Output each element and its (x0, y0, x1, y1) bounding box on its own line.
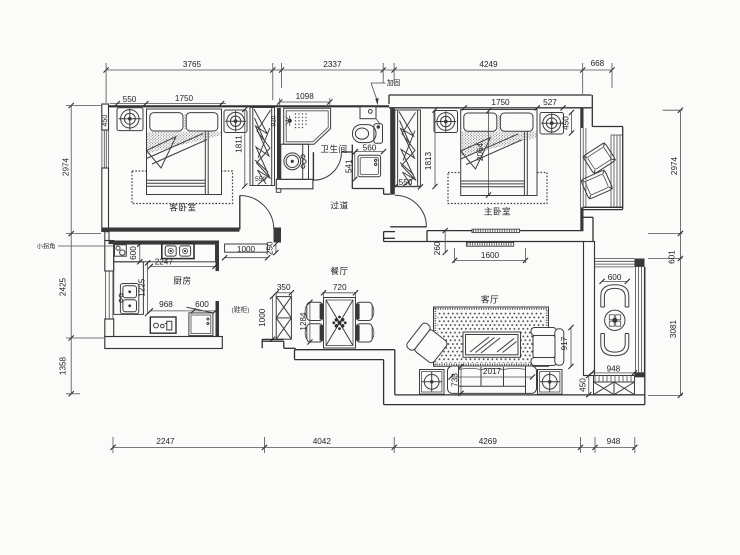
svg-text:920: 920 (271, 115, 278, 126)
svg-text:250: 250 (265, 241, 274, 255)
svg-text:350: 350 (277, 283, 291, 292)
svg-text:2064: 2064 (476, 142, 485, 161)
svg-text:600: 600 (608, 273, 622, 282)
svg-text:601: 601 (668, 250, 677, 264)
svg-text:(鞋柜): (鞋柜) (231, 305, 249, 314)
svg-text:1600: 1600 (481, 251, 500, 260)
svg-text:948: 948 (607, 364, 621, 373)
svg-text:1284: 1284 (299, 312, 308, 331)
svg-text:550: 550 (255, 176, 266, 183)
svg-text:450: 450 (579, 378, 588, 392)
svg-text:2247: 2247 (156, 437, 175, 446)
svg-text:1098: 1098 (296, 92, 315, 101)
svg-text:2337: 2337 (323, 60, 342, 69)
svg-text:加固: 加固 (387, 78, 401, 87)
svg-text:1750: 1750 (175, 94, 194, 103)
svg-text:560: 560 (363, 144, 377, 153)
svg-text:1813: 1813 (424, 151, 433, 170)
svg-text:1000: 1000 (258, 308, 267, 327)
svg-text:450: 450 (100, 115, 109, 127)
svg-text:4269: 4269 (479, 437, 498, 446)
svg-text:厨房: 厨房 (173, 275, 191, 286)
svg-text:668: 668 (591, 59, 605, 68)
svg-text:541: 541 (344, 159, 353, 173)
svg-text:4249: 4249 (479, 60, 498, 69)
svg-text:2974: 2974 (61, 157, 70, 176)
svg-text:3081: 3081 (669, 319, 678, 338)
svg-text:4042: 4042 (313, 437, 332, 446)
svg-text:主卧室: 主卧室 (484, 206, 511, 217)
svg-text:600: 600 (129, 246, 138, 260)
svg-text:1358: 1358 (59, 356, 68, 375)
svg-text:550: 550 (123, 95, 137, 104)
svg-text:餐厅: 餐厅 (330, 266, 348, 276)
svg-text:917: 917 (560, 336, 569, 350)
svg-text:过道: 过道 (330, 200, 348, 211)
svg-text:1000: 1000 (237, 245, 256, 254)
svg-text:客卧室: 客卧室 (169, 202, 196, 213)
svg-text:600: 600 (195, 300, 209, 309)
svg-text:卫生间: 卫生间 (320, 143, 347, 154)
svg-text:1811: 1811 (234, 135, 243, 153)
svg-text:小拐角: 小拐角 (37, 243, 56, 251)
svg-text:450: 450 (562, 116, 571, 130)
svg-text:2017: 2017 (483, 367, 502, 376)
svg-text:3765: 3765 (183, 60, 202, 69)
svg-text:550: 550 (399, 178, 413, 187)
svg-text:948: 948 (607, 437, 621, 446)
svg-text:客厅: 客厅 (481, 294, 499, 305)
svg-text:2425: 2425 (59, 277, 68, 296)
svg-text:2247: 2247 (155, 258, 174, 267)
svg-text:720: 720 (333, 283, 347, 292)
svg-text:260: 260 (433, 241, 442, 255)
svg-text:733: 733 (451, 373, 460, 387)
svg-text:968: 968 (159, 300, 173, 309)
svg-text:1225: 1225 (138, 278, 147, 297)
svg-text:1750: 1750 (491, 98, 510, 107)
svg-text:527: 527 (543, 98, 557, 107)
svg-text:2974: 2974 (670, 156, 679, 175)
